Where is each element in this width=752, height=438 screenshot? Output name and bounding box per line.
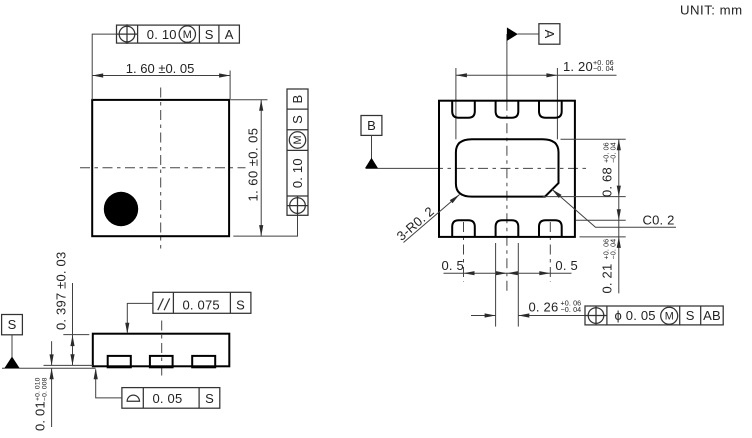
svg-text:0. 68: 0. 68 <box>600 167 615 197</box>
svg-text:UNIT: mm: UNIT: mm <box>680 2 743 17</box>
svg-text:0. 01: 0. 01 <box>33 401 48 431</box>
svg-text:ϕ 0. 05: ϕ 0. 05 <box>615 308 656 323</box>
svg-text:0. 075: 0. 075 <box>183 297 220 312</box>
svg-text:0. 10: 0. 10 <box>147 27 177 42</box>
svg-text:S: S <box>205 391 214 406</box>
svg-text:B: B <box>290 95 305 104</box>
svg-text:S: S <box>8 317 17 332</box>
svg-text:−0. 008: −0. 008 <box>42 377 49 401</box>
svg-text:−0. 04: −0. 04 <box>609 239 618 260</box>
svg-text:A: A <box>225 27 234 42</box>
svg-text:−0. 04: −0. 04 <box>609 142 618 163</box>
svg-text:0. 5: 0. 5 <box>555 258 577 273</box>
svg-text:A: A <box>542 30 557 39</box>
svg-text:S: S <box>205 27 214 42</box>
svg-text:M: M <box>292 136 304 145</box>
svg-text:1. 20: 1. 20 <box>563 59 593 74</box>
svg-text:S: S <box>236 297 245 312</box>
svg-text:S: S <box>290 115 305 124</box>
svg-text:B: B <box>367 118 376 133</box>
svg-text:S: S <box>686 308 695 323</box>
svg-text:C0. 2: C0. 2 <box>643 212 675 227</box>
svg-text:0. 397 ±0. 03: 0. 397 ±0. 03 <box>54 252 69 330</box>
svg-text:1. 60 ±0. 05: 1. 60 ±0. 05 <box>245 128 260 202</box>
svg-text:0. 10: 0. 10 <box>290 158 305 188</box>
svg-text:M: M <box>665 311 674 323</box>
svg-text:0. 05: 0. 05 <box>153 391 183 406</box>
svg-text:1. 60 ±0. 05: 1. 60 ±0. 05 <box>126 61 195 76</box>
svg-text:M: M <box>183 29 192 41</box>
svg-text:0. 5: 0. 5 <box>442 258 464 273</box>
svg-text:0. 21: 0. 21 <box>600 264 615 294</box>
svg-text:3-R0. 2: 3-R0. 2 <box>394 204 437 244</box>
svg-text:0. 26: 0. 26 <box>529 300 559 315</box>
svg-text:AB: AB <box>703 308 721 323</box>
svg-text:−0. 04: −0. 04 <box>593 64 614 73</box>
svg-text:+0. 010: +0. 010 <box>35 377 42 401</box>
svg-text:−0. 04: −0. 04 <box>561 305 582 314</box>
